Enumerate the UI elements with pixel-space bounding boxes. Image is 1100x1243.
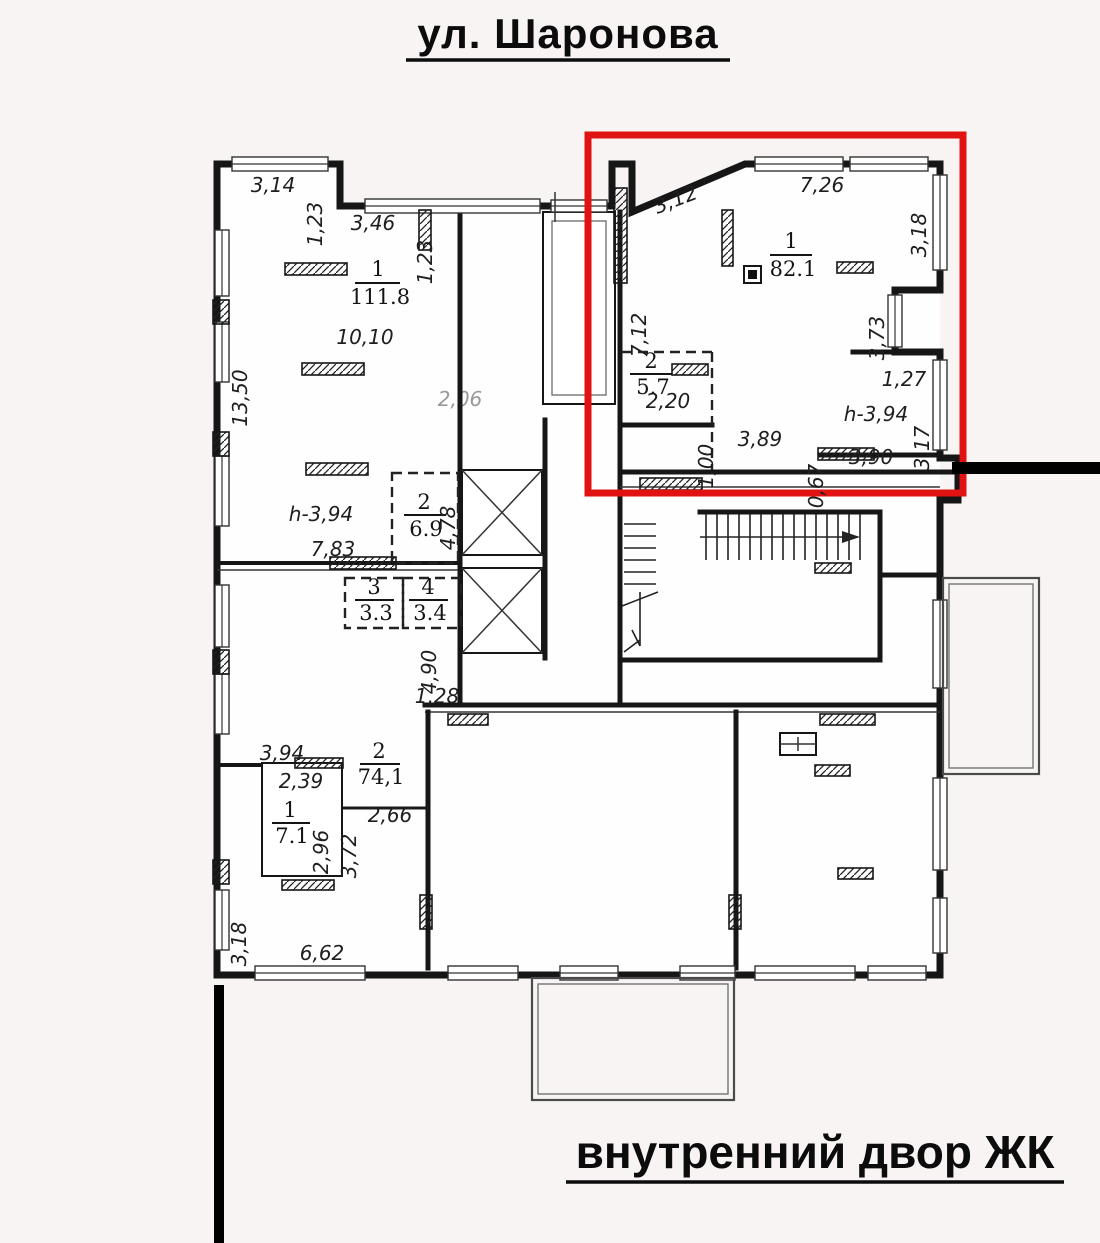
- radiator-hatch: [837, 262, 873, 273]
- radiator-hatch: [448, 714, 488, 725]
- radiator-hatch: [285, 263, 347, 275]
- room-number: 1: [283, 798, 296, 822]
- radiator-hatch: [838, 868, 873, 879]
- dim-label: 3,18: [227, 922, 251, 967]
- room-area: 111.8: [350, 285, 410, 309]
- dim-label: 1,28: [415, 684, 460, 708]
- elevator-shaft-icon: [462, 470, 542, 555]
- dim-label: 3,73: [865, 316, 889, 361]
- pilaster-hatch: [722, 210, 733, 266]
- dim-label: 10,10: [336, 325, 393, 349]
- page-title: ул. Шаронова: [417, 10, 718, 57]
- room-area: 3.4: [413, 601, 446, 625]
- dim-label: 1,00: [694, 444, 718, 489]
- dim-label: 7,26: [800, 173, 845, 197]
- room-number: 1: [784, 229, 797, 253]
- dim-label: 0,67: [804, 463, 828, 508]
- radiator-hatch: [282, 880, 334, 890]
- balcony-outline: [943, 578, 1039, 774]
- radiator-hatch: [815, 765, 850, 776]
- column-symbol: [748, 270, 757, 279]
- dim-label: h-3,94: [289, 502, 353, 526]
- radiator-hatch: [302, 363, 364, 375]
- room-number: 2: [372, 739, 385, 763]
- courtyard-caption: внутренний двор ЖК: [566, 1126, 1064, 1182]
- dim-label: 7,12: [627, 313, 651, 358]
- radiator-hatch: [306, 463, 368, 475]
- room-number: 2: [417, 490, 430, 514]
- elevator-shaft-icon: [462, 568, 542, 653]
- site-boundary-line-right: [952, 462, 1100, 474]
- room-number: 4: [421, 575, 434, 599]
- dim-label: 3,90: [849, 445, 894, 469]
- caption-text: внутренний двор ЖК: [576, 1126, 1056, 1178]
- dim-label: 4,78: [436, 506, 460, 551]
- dim-label: 6,62: [300, 941, 345, 965]
- radiator-hatch: [820, 714, 875, 725]
- room-number: 1: [371, 257, 384, 281]
- dim-label: 3,17: [910, 425, 934, 470]
- street-title: ул. Шаронова: [406, 10, 730, 60]
- dim-label: 1,27: [882, 367, 927, 391]
- dim-label: 2,96: [309, 830, 333, 875]
- dim-label: 3,72: [337, 834, 361, 879]
- entrance-vestibule: [543, 200, 615, 404]
- dim-label: 3,18: [907, 213, 931, 258]
- site-boundary-line-bottom: [214, 985, 224, 1243]
- dim-label: h-3,94: [844, 402, 908, 426]
- radiator-hatch: [815, 563, 851, 573]
- dim-label: 2,06: [438, 387, 483, 411]
- dim-label: 2,20: [646, 389, 691, 413]
- dim-label: 7,83: [311, 537, 356, 561]
- dim-label: 3,89: [738, 427, 783, 451]
- dim-label: 1,23: [303, 202, 327, 247]
- radiator-hatch: [640, 478, 702, 490]
- floor-plan-drawing: ул. Шаронова внутренний двор ЖК 1 111.8 …: [0, 0, 1100, 1243]
- dim-label: 13,50: [228, 369, 252, 426]
- room-area: 82.1: [770, 257, 817, 281]
- dim-label: 3,46: [351, 211, 396, 235]
- room-area: 7.1: [275, 824, 308, 848]
- dim-label: 3,94: [260, 741, 305, 765]
- dim-label: 3,14: [251, 173, 296, 197]
- room-area: 3.3: [359, 601, 392, 625]
- terrace-outline: [532, 978, 734, 1100]
- floor-plan-page: ул. Шаронова внутренний двор ЖК 1 111.8 …: [0, 0, 1100, 1243]
- radiator-hatch: [672, 364, 708, 375]
- table-symbol: [780, 733, 816, 755]
- dim-label: 2,66: [368, 803, 413, 827]
- room-number: 3: [367, 575, 380, 599]
- dim-label: 2,39: [279, 769, 324, 793]
- dim-label: 1,23: [413, 240, 437, 285]
- room-area: 74,1: [358, 765, 405, 789]
